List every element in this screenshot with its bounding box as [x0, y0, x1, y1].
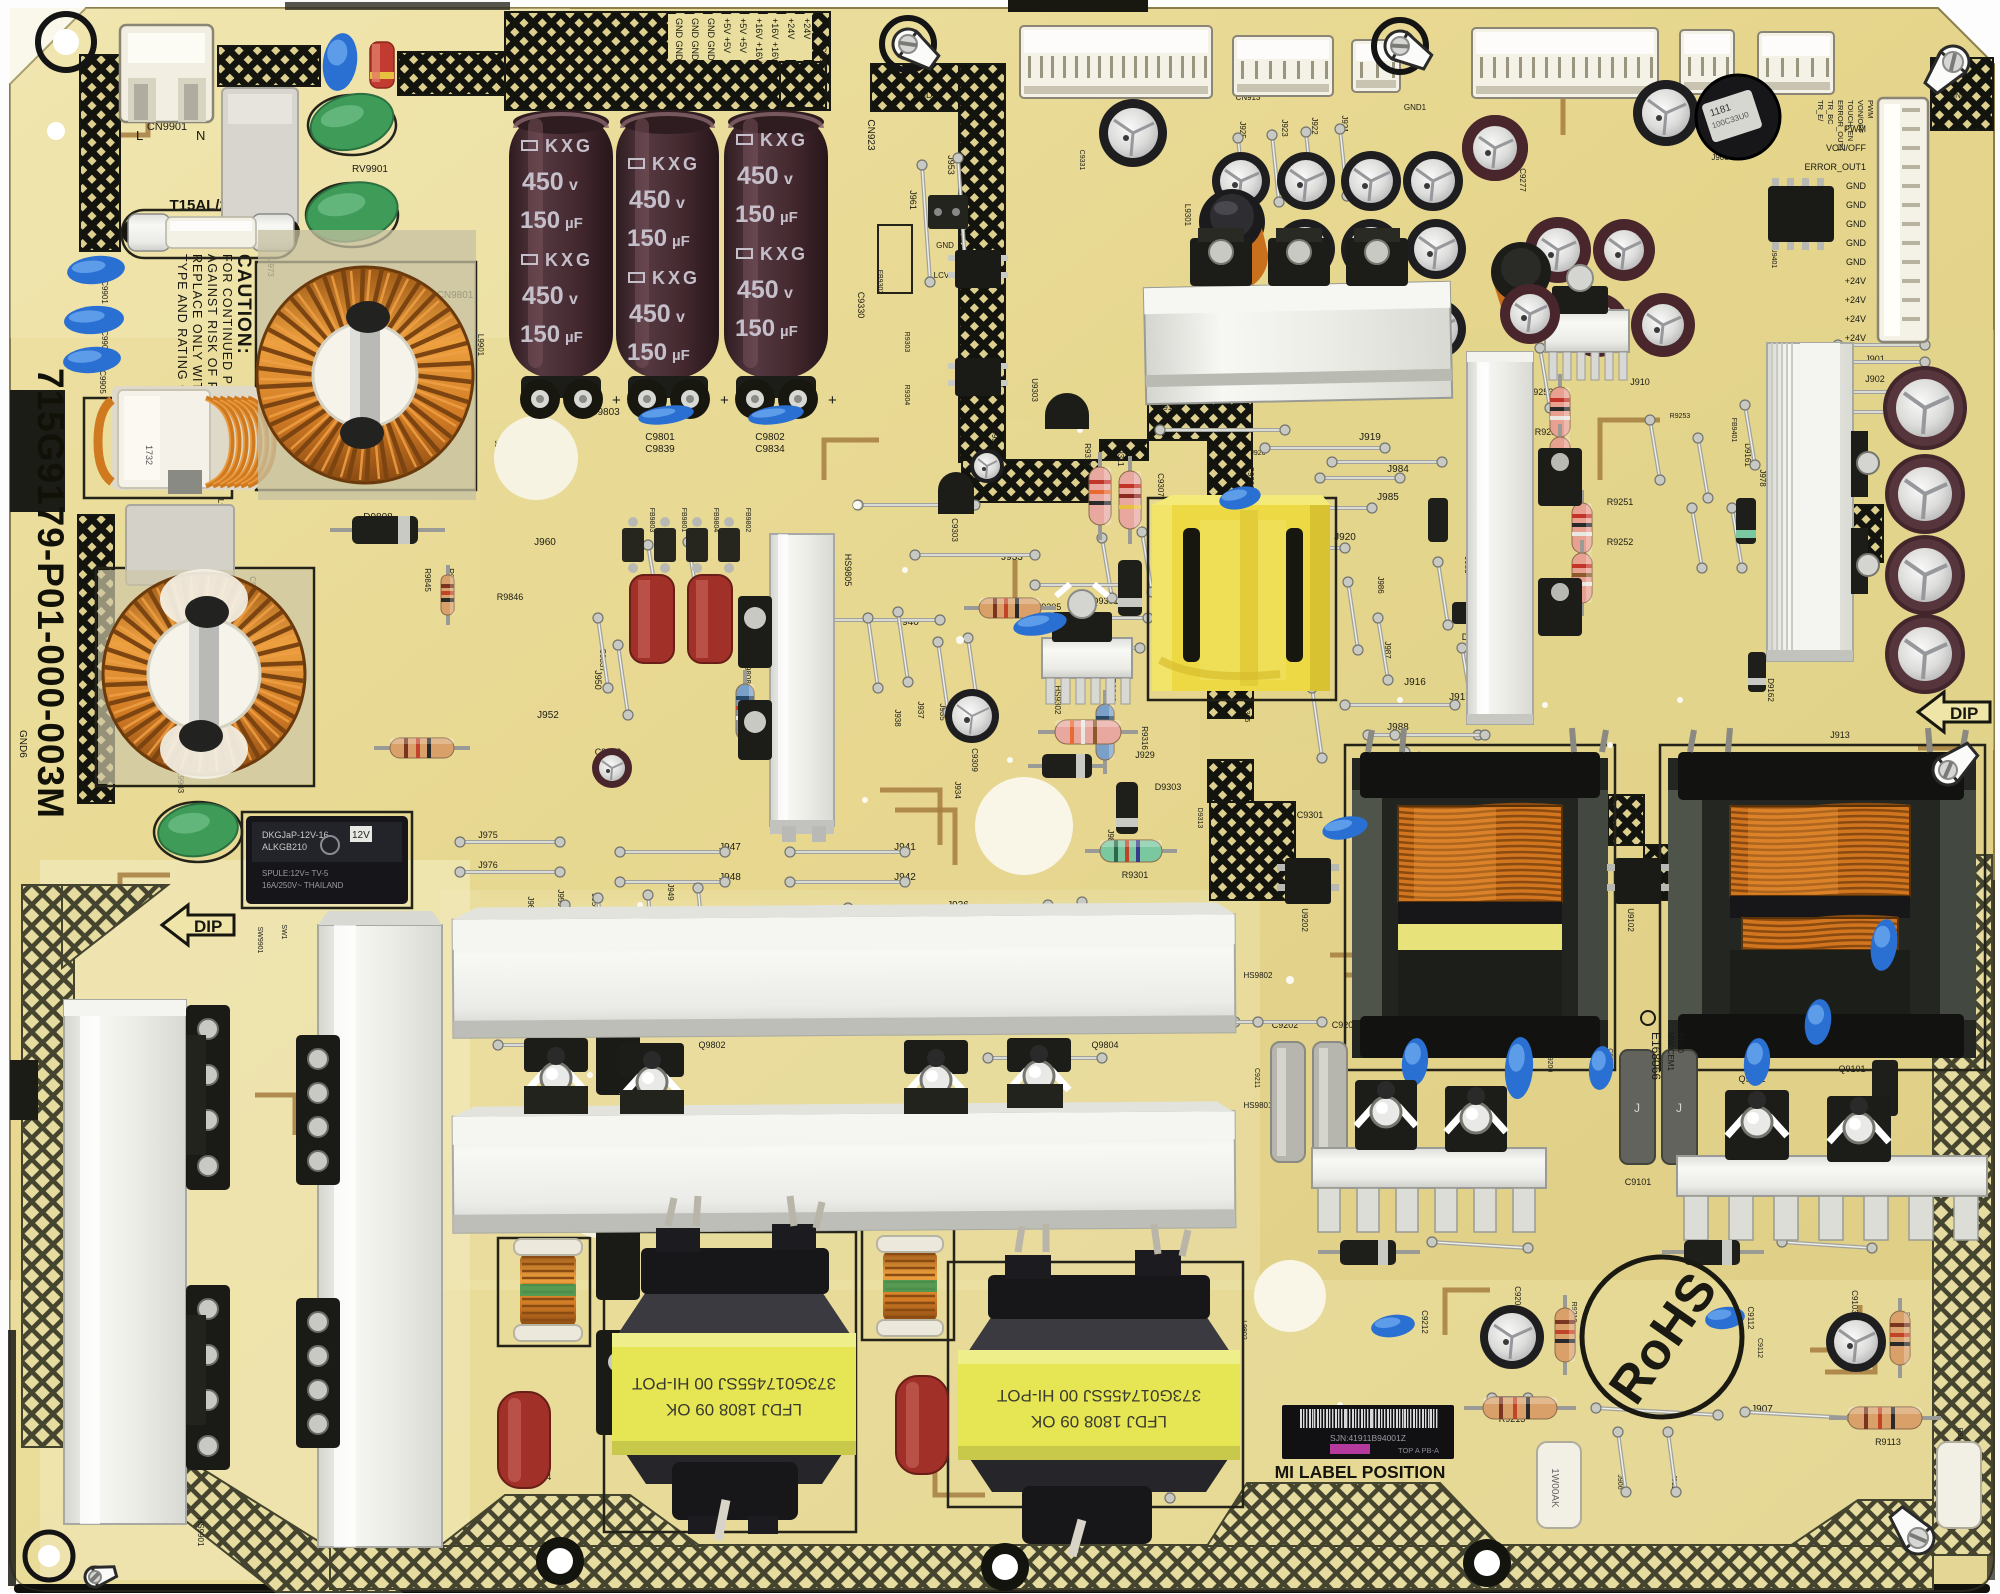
- svg-text:+: +: [828, 392, 837, 409]
- svg-text:ERROR_OUT1: ERROR_OUT1: [1836, 100, 1845, 151]
- svg-text:R9252: R9252: [1607, 537, 1634, 547]
- svg-text:L9301: L9301: [1183, 204, 1192, 227]
- svg-text:+24V: +24V: [802, 18, 812, 39]
- svg-text:DIP: DIP: [194, 917, 222, 936]
- svg-text:FB9801: FB9801: [680, 508, 687, 533]
- svg-text:J978: J978: [1758, 469, 1767, 487]
- svg-text:TR_BC: TR_BC: [1826, 100, 1835, 125]
- svg-text:J: J: [1634, 1101, 1640, 1115]
- svg-text:KXG: KXG: [760, 130, 808, 150]
- svg-text:Q9802: Q9802: [698, 1040, 725, 1050]
- svg-text:GND5: GND5: [912, 90, 937, 100]
- svg-text:150: 150: [627, 225, 667, 252]
- svg-text:150: 150: [627, 339, 667, 366]
- svg-text:PWM: PWM: [1866, 100, 1875, 118]
- svg-text:R9253: R9253: [1670, 413, 1691, 420]
- svg-text:CAUTION:: CAUTION:: [233, 254, 254, 355]
- svg-text:L9901: L9901: [476, 334, 485, 357]
- svg-text:FB9804: FB9804: [712, 508, 719, 533]
- svg-text:D9162: D9162: [1766, 678, 1775, 702]
- svg-text:GND: GND: [936, 241, 954, 250]
- svg-text:373G017455SJ 00 HI-POT: 373G017455SJ 00 HI-POT: [997, 1386, 1201, 1405]
- svg-text:C9211: C9211: [1253, 1068, 1260, 1088]
- svg-text:DKGJaP-12V-16: DKGJaP-12V-16: [262, 830, 329, 840]
- svg-text:450: 450: [522, 282, 564, 310]
- svg-text:+24V: +24V: [1845, 333, 1866, 343]
- svg-text:C9801: C9801: [645, 432, 675, 443]
- svg-text:J919: J919: [1359, 432, 1381, 443]
- svg-text:C9905: C9905: [98, 370, 107, 394]
- svg-text:J920: J920: [1334, 532, 1356, 543]
- svg-text:+24V: +24V: [786, 18, 796, 39]
- svg-text:+: +: [720, 392, 729, 409]
- svg-text:+: +: [612, 392, 621, 409]
- svg-text:J934: J934: [953, 781, 962, 799]
- svg-text:+16V +16V: +16V +16V: [770, 18, 780, 63]
- svg-text:12V: 12V: [352, 830, 370, 841]
- svg-text:KXG: KXG: [652, 268, 700, 288]
- svg-text:R9846: R9846: [497, 592, 524, 602]
- svg-text:v: v: [784, 171, 793, 188]
- svg-text:450: 450: [629, 186, 671, 214]
- svg-text:R9311: R9311: [1116, 444, 1125, 468]
- svg-text:J910: J910: [1630, 377, 1650, 387]
- svg-text:J923: J923: [1280, 119, 1289, 137]
- svg-text:J976: J976: [478, 860, 498, 870]
- svg-text:C9112: C9112: [1756, 1338, 1763, 1358]
- svg-text:RV9901: RV9901: [352, 164, 388, 175]
- svg-text:C9802: C9802: [755, 432, 785, 443]
- svg-text:SPULE:12V= TV-5: SPULE:12V= TV-5: [262, 869, 329, 878]
- svg-text:KXG: KXG: [652, 154, 700, 174]
- svg-text:GND: GND: [1846, 200, 1867, 210]
- svg-text:450: 450: [737, 162, 779, 190]
- svg-text:R9316: R9316: [1140, 726, 1149, 750]
- svg-text:U9102: U9102: [1626, 908, 1635, 932]
- svg-text:KXG: KXG: [545, 250, 593, 270]
- svg-text:E168066: E168066: [1649, 1032, 1663, 1080]
- svg-text:v: v: [569, 177, 578, 194]
- svg-text:J916: J916: [1404, 677, 1426, 688]
- svg-text:150: 150: [520, 321, 560, 348]
- svg-text:1732: 1732: [144, 445, 154, 465]
- svg-text:C9834: C9834: [755, 444, 785, 455]
- svg-text:FB9803: FB9803: [648, 508, 655, 533]
- svg-text:v: v: [676, 195, 685, 212]
- svg-text:GND GND: GND GND: [690, 18, 700, 61]
- svg-text:J950: J950: [593, 670, 603, 690]
- svg-text:VON/OFF: VON/OFF: [1826, 143, 1867, 153]
- svg-text:J952: J952: [537, 710, 559, 721]
- svg-text:HS9805: HS9805: [843, 554, 853, 587]
- svg-text:1W00AK: 1W00AK: [1549, 1468, 1560, 1508]
- svg-text:SW9901: SW9901: [256, 927, 263, 954]
- svg-text:FB9401: FB9401: [1730, 418, 1737, 443]
- svg-text:ERROR_OUT1: ERROR_OUT1: [1804, 162, 1866, 172]
- svg-text:+24V: +24V: [1845, 276, 1866, 286]
- svg-text:U9365: U9365: [1243, 702, 1250, 723]
- svg-text:+5V +5V: +5V +5V: [738, 18, 748, 53]
- svg-text:J985: J985: [1377, 492, 1399, 503]
- svg-text:R9845: R9845: [423, 568, 432, 592]
- svg-text:C9330: C9330: [856, 292, 866, 319]
- svg-text:L: L: [136, 128, 143, 143]
- svg-text:TOP A PB-A: TOP A PB-A: [1398, 1446, 1439, 1455]
- svg-text:450: 450: [522, 168, 564, 196]
- svg-text:KXG: KXG: [545, 136, 593, 156]
- svg-text:SW1: SW1: [280, 924, 287, 939]
- svg-text:C9277: C9277: [1518, 168, 1527, 192]
- svg-text:GND: GND: [1846, 238, 1867, 248]
- svg-text:+24V: +24V: [1845, 295, 1866, 305]
- svg-text:J902: J902: [1865, 374, 1885, 384]
- svg-text:J913: J913: [1830, 730, 1850, 740]
- svg-text:GND: GND: [1846, 257, 1867, 267]
- svg-text:R9303: R9303: [903, 332, 910, 353]
- svg-text:J986: J986: [1376, 576, 1385, 594]
- svg-text:DIP: DIP: [1950, 704, 1978, 723]
- svg-text:D9313: D9313: [1196, 808, 1203, 829]
- svg-text:J949: J949: [666, 883, 675, 901]
- svg-text:N: N: [196, 128, 205, 143]
- svg-text:µF: µF: [672, 347, 690, 364]
- svg-text:C9101: C9101: [1625, 1177, 1652, 1187]
- svg-text:VON/OFF: VON/OFF: [1856, 100, 1865, 134]
- svg-text:450: 450: [737, 276, 779, 304]
- svg-text:U9401: U9401: [1770, 248, 1777, 269]
- svg-text:150: 150: [735, 201, 775, 228]
- svg-text:150: 150: [520, 207, 560, 234]
- svg-text:C9901: C9901: [100, 280, 109, 304]
- svg-text:C9301: C9301: [1297, 810, 1324, 820]
- svg-text:ALKGB210: ALKGB210: [262, 842, 307, 852]
- svg-text:715G9179-P01-000-003M: 715G9179-P01-000-003M: [30, 368, 71, 819]
- svg-text:GND GND: GND GND: [706, 18, 716, 61]
- svg-text:D9303: D9303: [1155, 782, 1182, 792]
- svg-text:TOUCH_EN: TOUCH_EN: [1846, 100, 1855, 141]
- svg-text:v: v: [569, 291, 578, 308]
- svg-text:C9307: C9307: [1156, 473, 1165, 497]
- svg-text:C9839: C9839: [645, 444, 675, 455]
- svg-text:GND GND: GND GND: [674, 18, 684, 61]
- svg-text:µF: µF: [780, 209, 798, 226]
- svg-text:TR_E/: TR_E/: [1816, 100, 1825, 122]
- svg-text:C9303: C9303: [950, 518, 959, 542]
- svg-text:v: v: [784, 285, 793, 302]
- svg-text:MW-CEM1: MW-CEM1: [1666, 1032, 1675, 1072]
- svg-text:µF: µF: [780, 323, 798, 340]
- svg-text:MI LABEL POSITION: MI LABEL POSITION: [1275, 1462, 1446, 1482]
- svg-text:J960: J960: [534, 537, 556, 548]
- svg-text:J938: J938: [893, 709, 902, 727]
- svg-text:J961: J961: [908, 190, 918, 210]
- svg-text:+16V +16V: +16V +16V: [754, 18, 764, 63]
- svg-text:94V-0: 94V-0: [1676, 1032, 1685, 1053]
- svg-text:CN923: CN923: [865, 119, 876, 151]
- svg-text:HS9802: HS9802: [1244, 971, 1273, 980]
- svg-text:GND6: GND6: [17, 730, 28, 758]
- svg-text:LFDJ 1808 09 OK: LFDJ 1808 09 OK: [665, 1400, 802, 1419]
- svg-text:J937: J937: [916, 701, 925, 719]
- svg-text:C9103: C9103: [1850, 1290, 1859, 1314]
- svg-text:C9331: C9331: [1078, 150, 1085, 171]
- svg-text:+24V: +24V: [1845, 314, 1866, 324]
- svg-text:C9112: C9112: [1746, 1307, 1755, 1331]
- svg-text:J975: J975: [478, 830, 498, 840]
- svg-text:R9310: R9310: [1083, 443, 1092, 467]
- svg-text:HS9801: HS9801: [1244, 1101, 1273, 1110]
- svg-text:+5V +5V: +5V +5V: [722, 18, 732, 53]
- svg-text:C9212: C9212: [1420, 1310, 1429, 1334]
- svg-text:v: v: [676, 309, 685, 326]
- svg-text:R9251: R9251: [1607, 497, 1634, 507]
- svg-text:LFDJ 1808 09 OK: LFDJ 1808 09 OK: [1030, 1412, 1167, 1431]
- svg-text:KXG: KXG: [760, 244, 808, 264]
- svg-text:R9301: R9301: [1122, 870, 1149, 880]
- svg-text:µF: µF: [565, 329, 583, 346]
- svg-text:µF: µF: [565, 215, 583, 232]
- svg-text:GND1: GND1: [1404, 103, 1427, 112]
- svg-text:C9308: C9308: [990, 428, 999, 452]
- svg-text:U9202: U9202: [1300, 908, 1309, 932]
- svg-text:SJN:41911B94001Z: SJN:41911B94001Z: [1330, 1433, 1406, 1443]
- svg-text:J: J: [1676, 1101, 1682, 1115]
- svg-text:µF: µF: [672, 233, 690, 250]
- svg-text:16A/250V~ THAILAND: 16A/250V~ THAILAND: [262, 881, 344, 890]
- svg-text:373G017455SJ 00 HI-POT: 373G017455SJ 00 HI-POT: [632, 1374, 836, 1393]
- svg-text:J929: J929: [1135, 750, 1155, 760]
- svg-text:CN923: CN923: [818, 46, 828, 74]
- svg-text:FB9802: FB9802: [744, 508, 751, 533]
- svg-text:C9309: C9309: [970, 748, 979, 772]
- svg-text:HS9901: HS9901: [196, 1518, 205, 1547]
- svg-text:U9303: U9303: [1030, 378, 1039, 402]
- svg-text:450: 450: [629, 300, 671, 328]
- svg-text:GND: GND: [1846, 181, 1867, 191]
- svg-text:R9304: R9304: [903, 385, 910, 406]
- svg-text:Q9804: Q9804: [1091, 1040, 1118, 1050]
- svg-text:150: 150: [735, 315, 775, 342]
- svg-text:GND2: GND2: [1949, 91, 1972, 100]
- svg-text:GND: GND: [1846, 219, 1867, 229]
- svg-text:R9113: R9113: [1875, 1437, 1901, 1447]
